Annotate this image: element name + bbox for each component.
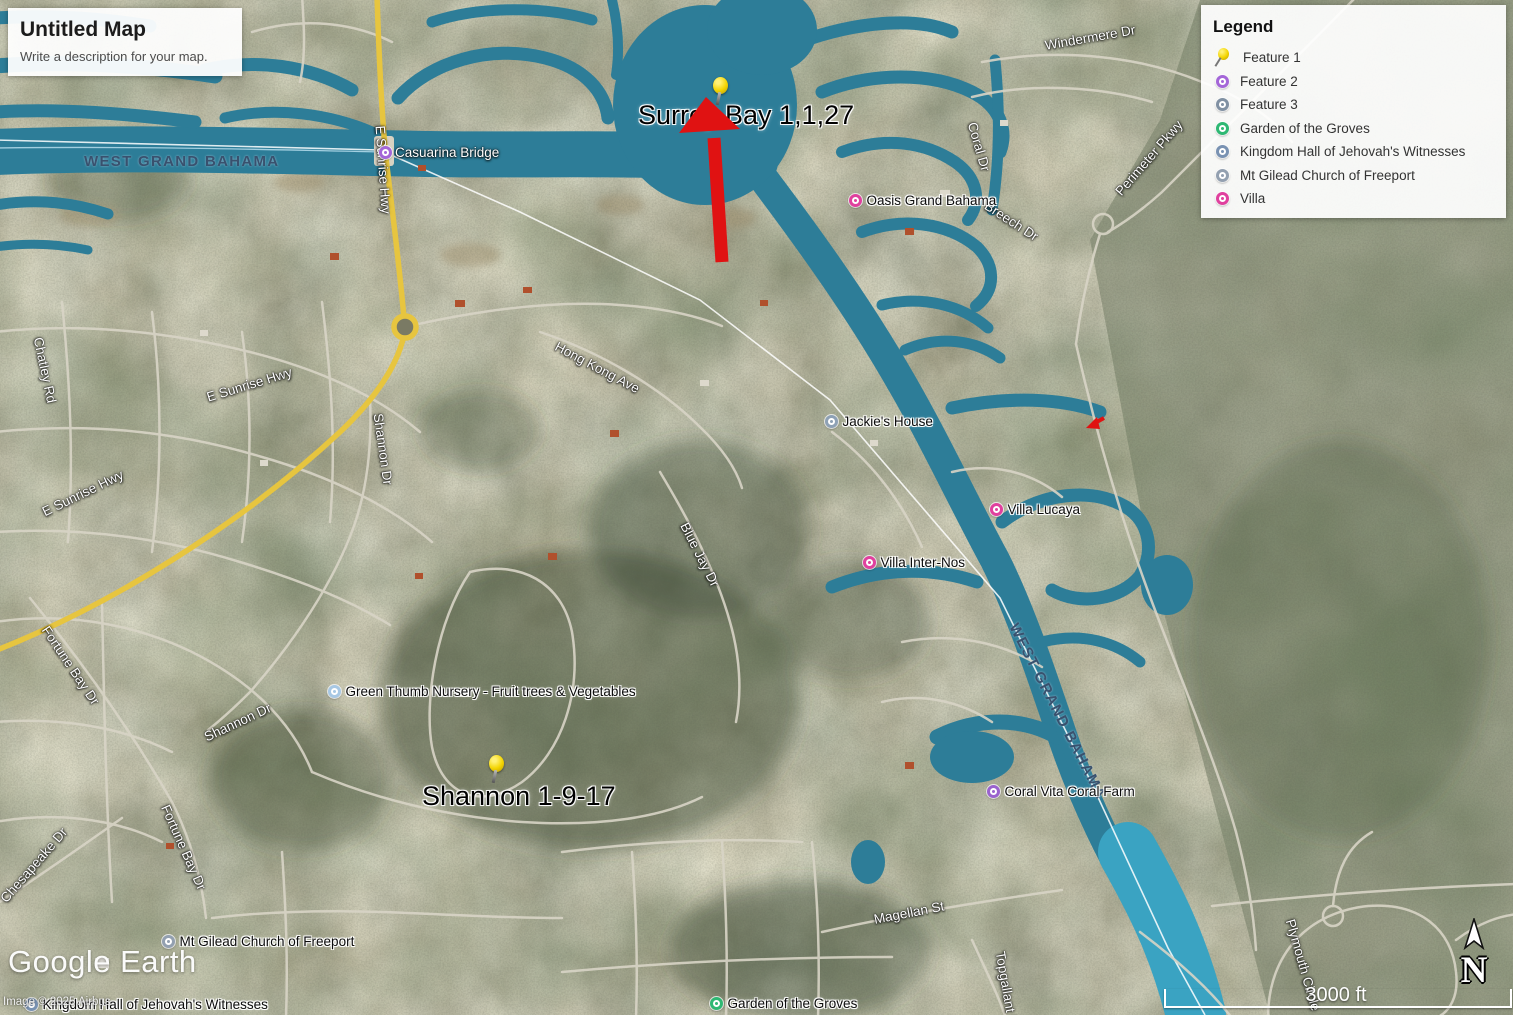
road-label-shannon-dr: Shannon Dr [202,700,274,744]
road-label-casuarina-bridge: Casuarina Bridge [395,145,499,160]
poi-label-villa-lucaya: Villa Lucaya [1008,502,1081,517]
poi-label-coral-vita-coral-farm: Coral Vita Coral Farm [1005,784,1135,799]
poi-label-mt-gilead-church-of-freeport: Mt Gilead Church of Freeport [180,934,355,949]
road-label-e-sunrise-hwy: E Sunrise Hwy [373,125,394,214]
annotation-label-shannon-1-9-17: Shannon 1-9-17 [422,781,616,812]
google-earth-canvas[interactable]: Windermere DrCasuarina BridgeE Sunrise H… [0,0,1513,1015]
poi-label-villa-inter-nos: Villa Inter-Nos [881,555,966,570]
poi-label-garden-of-the-groves: Garden of the Groves [728,996,858,1011]
jackie-s-house-marker-icon[interactable] [825,415,838,428]
poi-villa-inter-nos: Villa Inter-Nos [863,555,966,570]
legend-label-feature-2: Feature 2 [1240,74,1298,89]
scale-bar: 3000 ft [1164,988,1508,1010]
road-label-fortune-bay-dr: Fortune Bay Dr [158,802,209,892]
road-label-e-sunrise-hwy: E Sunrise Hwy [40,467,126,519]
poi-green-thumb-nursery-fruit-trees-vegetables: Green Thumb Nursery - Fruit trees & Vege… [328,684,636,699]
road-label-chatley-rd: Chatley Rd [31,336,60,404]
poi-coral-vita-coral-farm: Coral Vita Coral Farm [987,784,1135,799]
road-label-perimeter-pkwy: Perimeter Pkwy [1112,117,1185,198]
scale-line [1164,989,1512,1008]
boundary-label-west-grand-bahama-1: WEST GRAND BAHAMA [84,153,279,170]
road-label-hong-kong-ave: Hong Kong Ave [552,339,642,396]
compass-n: N [1452,955,1496,986]
road-label-shannon-dr: Shannon Dr [371,412,396,485]
annotation-label-surrey-bay-1-1-27: Surrey Bay 1,1,27 [638,100,854,131]
feature-2-marker-icon[interactable] [379,146,392,159]
road-label-topgallant-rd: Topgallant Rd [993,950,1022,1015]
pushpin-icon [1213,48,1232,68]
poi-feature-2 [379,146,392,159]
villa-circle-icon [1216,192,1229,205]
villa-inter-nos-marker-icon[interactable] [863,556,876,569]
compass[interactable]: N [1452,918,1496,986]
road-label-coral-dr: Coral Dr [965,120,993,172]
poi-label-green-thumb-nursery-fruit-trees-vegetables: Green Thumb Nursery - Fruit trees & Vege… [346,684,636,699]
legend-label-feature-3: Feature 3 [1240,97,1298,112]
compass-arrow-icon [1462,918,1486,950]
road-label-blue-jay-dr: Blue Jay Dr [677,520,722,589]
legend-item-villa: Villa [1213,187,1506,211]
kingdom-hall-of-jehovah-s-witnesses-circle-icon [1216,145,1229,158]
garden-of-the-groves-marker-icon[interactable] [710,997,723,1010]
garden-of-the-groves-circle-icon [1216,122,1229,135]
copyright-text: Image © 2025 Airbus [3,996,111,1008]
road-label-magellan-st: Magellan St [873,899,946,927]
map-description[interactable]: Write a description for your map. [20,49,230,64]
legend-panel: Legend Feature 1Feature 2Feature 3Garden… [1201,5,1506,218]
road-label-e-sunrise-hwy: E Sunrise Hwy [205,364,294,404]
pushpin-marker-2[interactable] [482,754,508,788]
legend-title: Legend [1213,17,1506,37]
villa-lucaya-marker-icon[interactable] [990,503,1003,516]
legend-item-feature-3: Feature 3 [1213,93,1506,117]
legend-item-feature-1: Feature 1 [1213,46,1506,70]
map-title-panel: Untitled Map Write a description for you… [8,8,242,76]
coral-vita-coral-farm-marker-icon[interactable] [987,785,1000,798]
map-title: Untitled Map [20,18,230,42]
feature-3-circle-icon [1216,98,1229,111]
pushpin-marker-1[interactable] [706,76,732,110]
poi-villa-lucaya: Villa Lucaya [990,502,1081,517]
green-thumb-nursery-fruit-trees-vegetables-marker-icon[interactable] [328,685,341,698]
legend-item-kingdom-hall-of-jehovah-s-witnesses: Kingdom Hall of Jehovah's Witnesses [1213,140,1506,164]
legend-label-feature-1: Feature 1 [1243,50,1301,65]
oasis-grand-bahama-marker-icon[interactable] [849,194,862,207]
poi-garden-of-the-groves: Garden of the Groves [710,996,858,1011]
road-label-fortune-bay-dr: Fortune Bay Dr [39,623,103,707]
poi-oasis-grand-bahama: Oasis Grand Bahama [849,193,997,208]
legend-item-feature-2: Feature 2 [1213,70,1506,94]
boundary-label-west-grand-bahama-2: WEST GRAND BAHAMA [1005,621,1109,803]
legend-item-mt-gilead-church-of-freeport: Mt Gilead Church of Freeport [1213,164,1506,188]
poi-label-oasis-grand-bahama: Oasis Grand Bahama [867,193,997,208]
legend-label-mt-gilead-church-of-freeport: Mt Gilead Church of Freeport [1240,168,1415,183]
legend-item-garden-of-the-groves: Garden of the Groves [1213,117,1506,141]
legend-label-garden-of-the-groves: Garden of the Groves [1240,121,1370,136]
legend-label-villa: Villa [1240,191,1265,206]
mt-gilead-church-of-freeport-circle-icon [1216,169,1229,182]
poi-label-jackie-s-house: Jackie's House [843,414,933,429]
legend-label-kingdom-hall-of-jehovah-s-witnesses: Kingdom Hall of Jehovah's Witnesses [1240,144,1465,159]
poi-jackie-s-house: Jackie's House [825,414,933,429]
road-label-windermere-dr: Windermere Dr [1044,22,1137,53]
feature-2-circle-icon [1216,75,1229,88]
road-label-chesapeake-dr: Chesapeake Dr [0,825,70,906]
google-earth-logo: Google Earth [8,944,197,980]
